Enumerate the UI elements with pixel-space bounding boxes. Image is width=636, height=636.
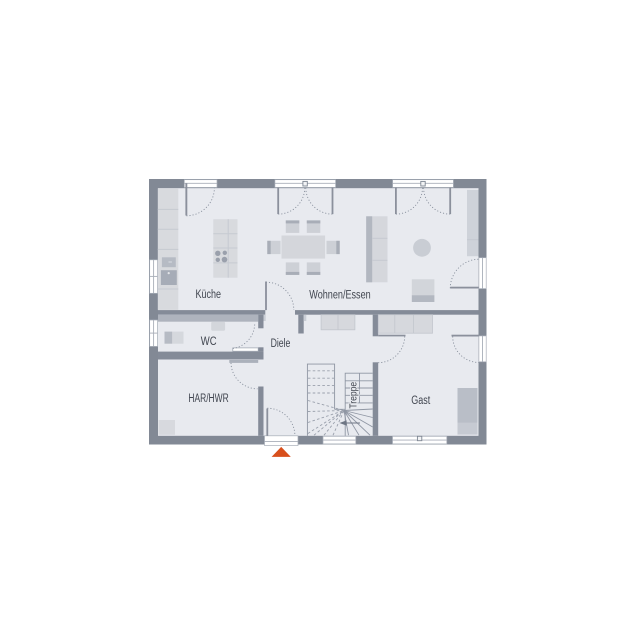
svg-text:Wohnen/Essen: Wohnen/Essen <box>309 289 370 301</box>
svg-text:Diele: Diele <box>271 338 291 350</box>
svg-text:HAR/HWR: HAR/HWR <box>188 393 228 405</box>
svg-text:WC: WC <box>201 336 217 348</box>
svg-text:Gast: Gast <box>411 395 431 407</box>
svg-text:Küche: Küche <box>196 289 222 301</box>
svg-text:Treppe: Treppe <box>348 382 359 409</box>
